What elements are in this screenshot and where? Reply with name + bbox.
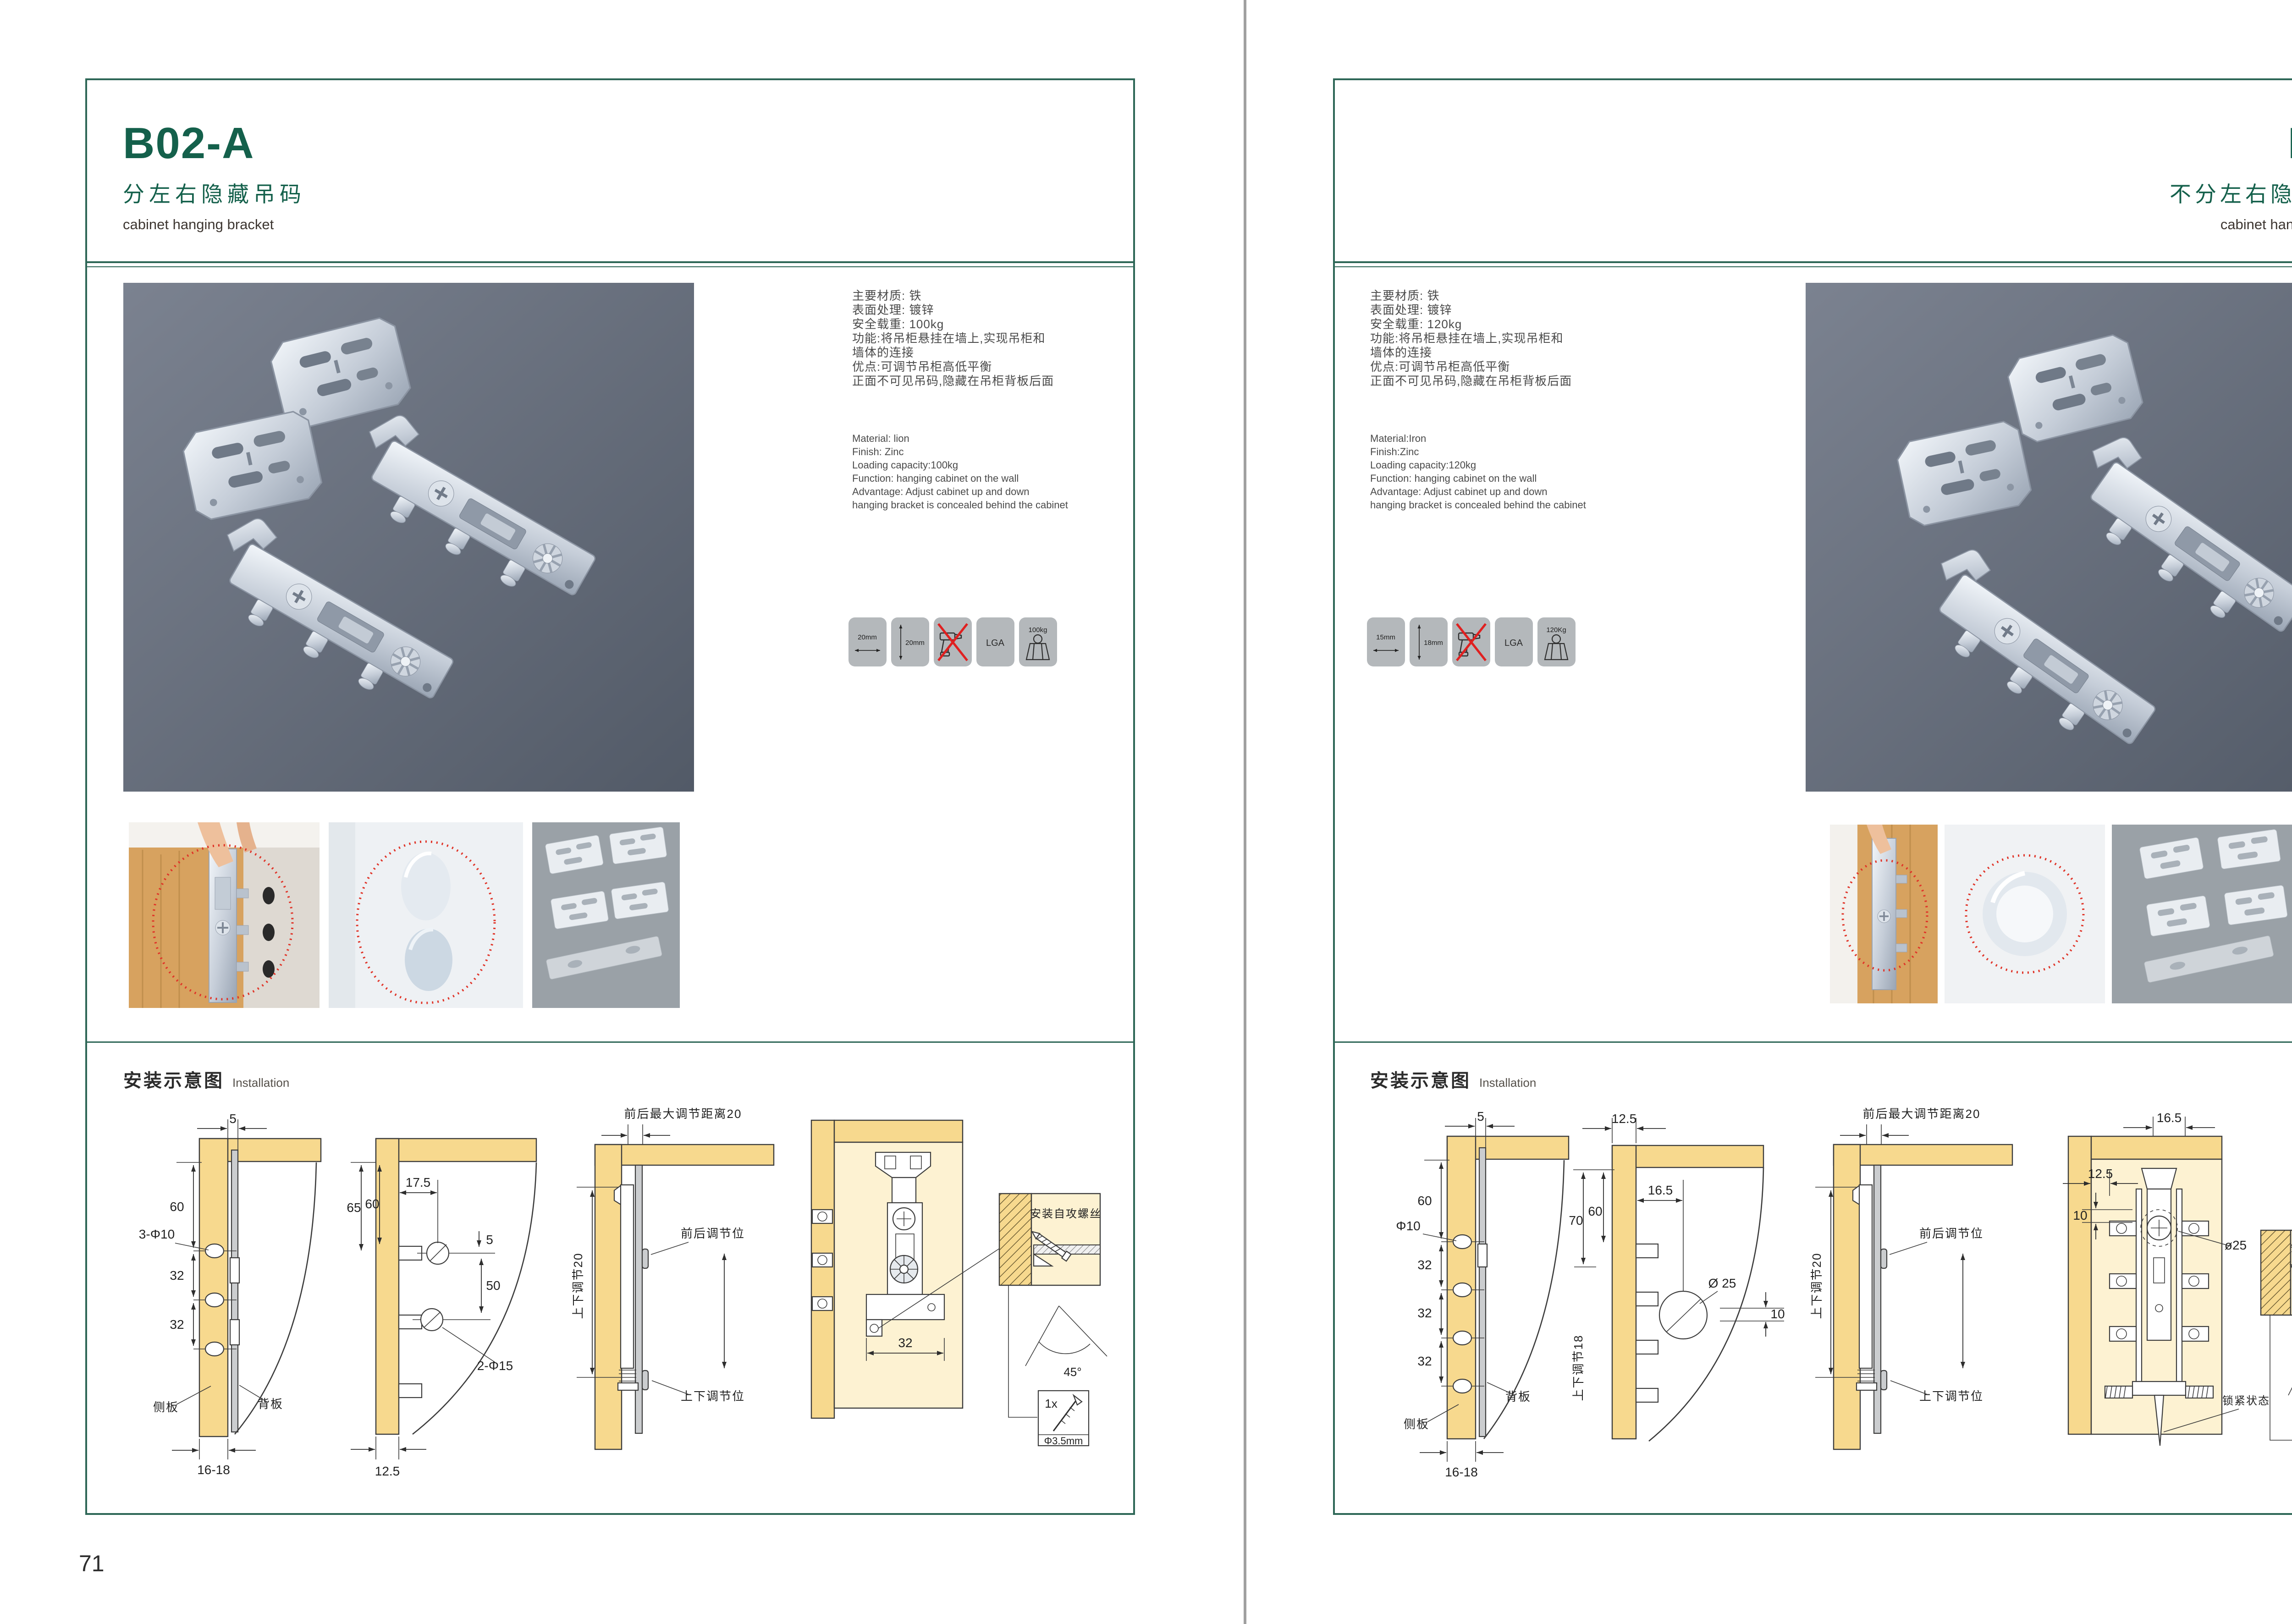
page-header-left: B02-A 分左右隐藏吊码 cabinet hanging bracket <box>123 121 306 233</box>
badge-lga-certified: LGA <box>976 617 1014 666</box>
part-label: 上下调节位 <box>681 1389 745 1403</box>
main-product-photo <box>1806 283 2292 792</box>
dim-label: 10 <box>1770 1307 1785 1321</box>
badge-label: 120Kg <box>1546 626 1566 634</box>
dim-label: 60 <box>1588 1204 1602 1218</box>
install-diagram-4: 16.5 12.5 10 ø25 锁紧状态 <box>2041 1111 2292 1496</box>
spec-line: 墙体的连接 <box>852 346 1054 360</box>
dim-label: 上下调节18 <box>1571 1335 1585 1401</box>
dim-label: 16.5 <box>2157 1111 2182 1125</box>
dim-label: 12.5 <box>1612 1112 1637 1126</box>
spec-line: Function: hanging cabinet on the wall <box>1370 472 1586 485</box>
part-label: 侧板 <box>1404 1417 1429 1431</box>
part-label: 背板 <box>1505 1390 1531 1404</box>
install-heading: 安装示意图 Installation <box>123 1066 289 1092</box>
dim-label: 12.5 <box>2088 1167 2113 1181</box>
thumb-parts-photo <box>532 822 680 1008</box>
specs-english: Material: lion Finish: Zinc Loading capa… <box>852 432 1068 512</box>
spec-line: 安全载重: 120kg <box>1370 317 1572 331</box>
page-header-right: B03 不分左右隐藏吊码 cabinet hanging bracket <box>2170 121 2292 233</box>
dim-label: 60 <box>365 1197 379 1211</box>
install-diagram-3: 前后最大调节距离20 上下调节20 前后调节位 上下调节位 <box>1812 1102 2032 1497</box>
dim-label: 2-Φ15 <box>477 1359 513 1373</box>
dim-label: 17.5 <box>406 1175 431 1189</box>
spec-line: 正面不可见吊码,隐藏在吊柜背板后面 <box>852 374 1054 388</box>
part-label: 上下调节位 <box>1919 1389 1983 1403</box>
dim-label: 12.5 <box>375 1464 400 1478</box>
dim-label: 32 <box>898 1336 912 1350</box>
spec-line: Function: hanging cabinet on the wall <box>852 472 1068 485</box>
part-label: 锁紧状态 <box>2222 1395 2270 1407</box>
badge-vertical-clearance: 18mm <box>1410 617 1448 666</box>
spec-line: 优点:可调节吊柜高低平衡 <box>1370 360 1572 374</box>
install-heading-cn: 安装示意图 <box>123 1066 224 1092</box>
part-label: 前后调节位 <box>1919 1227 1983 1240</box>
badge-lga-certified: LGA <box>1495 617 1533 666</box>
part-label: 前后调节位 <box>681 1227 745 1240</box>
dim-label: 16-18 <box>197 1463 230 1477</box>
install-diagram-4: 32 安装自攻螺丝 45° 1x Φ3.5mm <box>802 1111 1100 1496</box>
angle-label: 45° <box>1063 1365 1081 1379</box>
badge-label: 18mm <box>1424 639 1443 647</box>
spec-line: 主要材质: 铁 <box>1370 289 1572 303</box>
photo-background <box>123 283 694 792</box>
badge-label: LGA <box>986 638 1005 648</box>
specs-chinese: 主要材质: 铁 表面处理: 镀锌 安全载重: 100kg 功能:将吊柜悬挂在墙上… <box>852 289 1054 388</box>
dim-label: 65 <box>347 1200 361 1215</box>
install-divider <box>87 1041 1133 1043</box>
dim-label: 前后最大调节距离20 <box>1863 1107 1981 1121</box>
dim-label: 70 <box>1569 1213 1583 1228</box>
spec-line: Material: lion <box>852 432 1068 445</box>
spec-line: 功能:将吊柜悬挂在墙上,实现吊柜和 <box>852 331 1054 346</box>
spec-line: 主要材质: 铁 <box>852 289 1054 303</box>
dim-label: 10 <box>2073 1208 2087 1222</box>
part-label: 背板 <box>258 1397 283 1411</box>
badge-horizontal-clearance: 20mm <box>848 617 887 666</box>
spec-line: Loading capacity:100kg <box>852 458 1068 472</box>
dim-label: Φ10 <box>1396 1219 1420 1233</box>
install-heading-en: Installation <box>1479 1076 1536 1090</box>
spec-line: Finish:Zinc <box>1370 445 1586 458</box>
thumb-parts-photo <box>2112 825 2292 1003</box>
spec-line: hanging bracket is concealed behind the … <box>1370 498 1586 512</box>
product-code: B03 <box>2170 121 2292 165</box>
install-diagram-2: 12.5 70 60 16.5 Ø 25 10 上下调节18 <box>1569 1111 1798 1496</box>
header-divider <box>87 261 1133 263</box>
dim-label: 32 <box>1417 1258 1432 1272</box>
specs-english: Material:Iron Finish:Zinc Loading capaci… <box>1370 432 1586 512</box>
header-divider-2 <box>1335 266 2292 267</box>
spec-line: hanging bracket is concealed behind the … <box>852 498 1068 512</box>
product-title-cn: 分左右隐藏吊码 <box>123 176 306 208</box>
badge-label: LGA <box>1504 638 1523 648</box>
dim-label: 上下调节20 <box>1810 1253 1824 1319</box>
spec-line: 正面不可见吊码,隐藏在吊柜背板后面 <box>1370 374 1572 388</box>
dim-label: 32 <box>1417 1354 1432 1368</box>
install-heading-cn: 安装示意图 <box>1370 1066 1471 1092</box>
dim-label: 5 <box>1477 1109 1484 1123</box>
install-diagram-1: 5 60 3-Φ10 32 32 侧板 背板 16-18 <box>133 1111 325 1496</box>
page-number-left: 71 <box>79 1550 105 1577</box>
inset-label: 安装自攻螺丝 <box>1030 1208 1102 1220</box>
dim-label: 3-Φ10 <box>139 1227 175 1241</box>
dim-label: 60 <box>170 1200 184 1214</box>
badge-no-drill <box>1452 617 1490 666</box>
badge-load-capacity: 120Kg <box>1537 617 1576 666</box>
product-subtitle-en: cabinet hanging bracket <box>123 216 306 233</box>
dim-label: 50 <box>486 1278 500 1293</box>
product-title-cn: 不分左右隐藏吊码 <box>2170 176 2292 208</box>
badge-vertical-clearance: 20mm <box>891 617 929 666</box>
install-diagram-2: 65 60 17.5 5 50 2-Φ15 12.5 <box>344 1111 573 1496</box>
header-divider <box>1335 261 2292 263</box>
badge-label: 15mm <box>1376 633 1395 641</box>
install-diagram-3: 前后最大调节距离20 上下调节20 前后调节位 上下调节位 <box>573 1102 793 1497</box>
dim-label: 32 <box>170 1268 184 1283</box>
spec-line: Advantage: Adjust cabinet up and down <box>1370 485 1586 498</box>
page-right: B03 不分左右隐藏吊码 cabinet hanging bracket 主要材… <box>1333 78 2292 1515</box>
spec-line: 表面处理: 镀锌 <box>852 303 1054 317</box>
dim-label: 32 <box>1417 1306 1432 1320</box>
dim-label: Ø 25 <box>1708 1276 1736 1290</box>
spec-line: Material:Iron <box>1370 432 1586 445</box>
spec-line: Advantage: Adjust cabinet up and down <box>852 485 1068 498</box>
badge-label: 100kg <box>1029 626 1047 634</box>
dim-label: 16-18 <box>1445 1465 1478 1479</box>
dim-label: 16.5 <box>1648 1183 1673 1197</box>
product-code: B02-A <box>123 121 306 165</box>
install-heading: 安装示意图 Installation <box>1370 1066 1536 1092</box>
dim-label: 60 <box>1417 1194 1432 1208</box>
badge-no-drill <box>934 617 972 666</box>
install-divider <box>1335 1041 2292 1043</box>
thumb-installed-photo <box>1830 825 1938 1003</box>
thumb-concealed-photo <box>329 822 523 1008</box>
thumb-installed-photo <box>129 822 320 1008</box>
header-divider-2 <box>87 266 1133 267</box>
product-subtitle-en: cabinet hanging bracket <box>2170 216 2292 233</box>
dim-label: 32 <box>170 1317 184 1332</box>
spec-line: 表面处理: 镀锌 <box>1370 303 1572 317</box>
page-fold-divider <box>1244 0 1246 1624</box>
spec-line: Loading capacity:120kg <box>1370 458 1586 472</box>
badge-label: 20mm <box>905 639 925 647</box>
spec-line: 功能:将吊柜悬挂在墙上,实现吊柜和 <box>1370 331 1572 346</box>
part-label: 侧板 <box>153 1400 179 1414</box>
dim-label: 5 <box>486 1233 493 1247</box>
dim-label: 前后最大调节距离20 <box>624 1107 742 1121</box>
badge-label: 20mm <box>858 633 877 641</box>
spec-line: 优点:可调节吊柜高低平衡 <box>852 360 1054 374</box>
screw-qty: 1x <box>1045 1397 1057 1410</box>
thumb-concealed-photo <box>1945 825 2105 1003</box>
spec-line: 墙体的连接 <box>1370 346 1572 360</box>
screw-dia: Φ3.5mm <box>1044 1435 1083 1447</box>
page-left: B02-A 分左右隐藏吊码 cabinet hanging bracket 主要… <box>85 78 1135 1515</box>
badge-horizontal-clearance: 15mm <box>1367 617 1405 666</box>
install-heading-en: Installation <box>232 1076 289 1090</box>
spec-line: 安全载重: 100kg <box>852 317 1054 331</box>
badge-load-capacity: 100kg <box>1019 617 1057 666</box>
install-diagram-1: 5 60 Φ10 32 32 32 背板 侧板 16-18 <box>1381 1111 1573 1496</box>
dim-label: 上下调节20 <box>571 1253 585 1319</box>
dim-label: 5 <box>229 1112 237 1126</box>
spec-line: Finish: Zinc <box>852 445 1068 458</box>
specs-chinese: 主要材质: 铁 表面处理: 镀锌 安全载重: 120kg 功能:将吊柜悬挂在墙上… <box>1370 289 1572 388</box>
main-product-photo <box>123 283 694 792</box>
